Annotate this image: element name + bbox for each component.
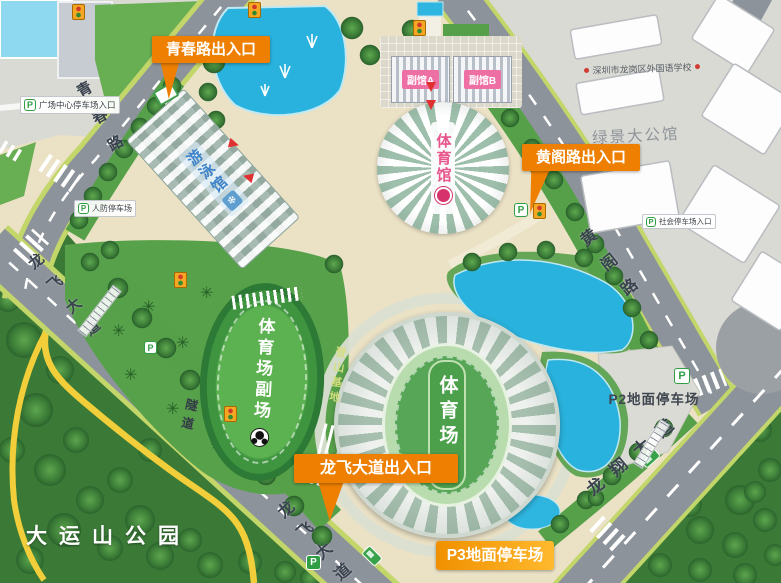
school-dot-icon xyxy=(584,68,589,73)
traffic-signal-icon xyxy=(413,20,426,36)
svg-text:✳: ✳ xyxy=(200,285,213,302)
svg-text:✳: ✳ xyxy=(112,323,125,340)
p2-parking-group: P P2地面停车场 xyxy=(592,366,716,408)
annex-a-building: 副馆A xyxy=(391,56,450,103)
gymnasium-building: 体育馆 xyxy=(377,102,509,234)
entrance-arrow-icon xyxy=(426,100,436,110)
parking-icon: P xyxy=(674,368,690,384)
callout-longfei-entrance: 龙飞大道出入口 xyxy=(294,454,458,483)
p3-parking-label: P3地面停车场 xyxy=(436,541,554,570)
callout-huangge-entrance: 黄阁路出入口 xyxy=(522,144,640,171)
natatorium-label: 游泳馆 xyxy=(181,145,233,199)
entrance-arrow-icon xyxy=(426,82,436,92)
plaza-center-parking-sign: P 广场中心停车场入口 xyxy=(20,96,120,114)
annex-b-label: 副馆B xyxy=(464,70,501,89)
parking-icon: P xyxy=(78,203,89,214)
traffic-signal-icon xyxy=(224,406,237,422)
stadium-label: 体育场 xyxy=(434,375,461,450)
callout-qingchun-entrance: 青春路出入口 xyxy=(152,36,270,63)
svg-text:✳: ✳ xyxy=(176,335,189,352)
huangge-entrance-parking-icon: P xyxy=(514,203,528,217)
p2-parking-label: P2地面停车场 xyxy=(592,388,716,408)
svg-text:✳: ✳ xyxy=(166,401,179,418)
annex-b-building: 副馆B xyxy=(453,56,512,103)
soccer-ball-icon xyxy=(249,427,269,447)
park-map: ✳✳✳ ✳✳✳ ✳✳✳✳ 游泳馆 ❄ 副馆A xyxy=(0,0,781,583)
traffic-signal-icon xyxy=(72,4,85,20)
school-dot-icon xyxy=(694,64,699,69)
civil-defense-parking-sign: P 人防停车场 xyxy=(74,200,136,217)
traffic-signal-icon xyxy=(248,2,261,18)
gymnasium-logo-icon xyxy=(435,187,452,204)
traffic-signal-icon xyxy=(174,272,187,288)
gymnasium-label: 体育馆 xyxy=(433,133,454,184)
parking-icon: P xyxy=(646,217,656,227)
parking-icon: P xyxy=(24,99,36,111)
p3-entrance-parking-icon: P xyxy=(306,555,321,570)
social-parking-sign: P 社会停车场入口 xyxy=(642,214,716,229)
traffic-signal-icon xyxy=(533,203,546,219)
stadium-building: 体育场 xyxy=(334,312,560,538)
svg-text:✳: ✳ xyxy=(142,299,155,316)
roadside-parking-icon: P xyxy=(144,341,157,354)
park-name: 大运山公园 xyxy=(26,520,191,550)
